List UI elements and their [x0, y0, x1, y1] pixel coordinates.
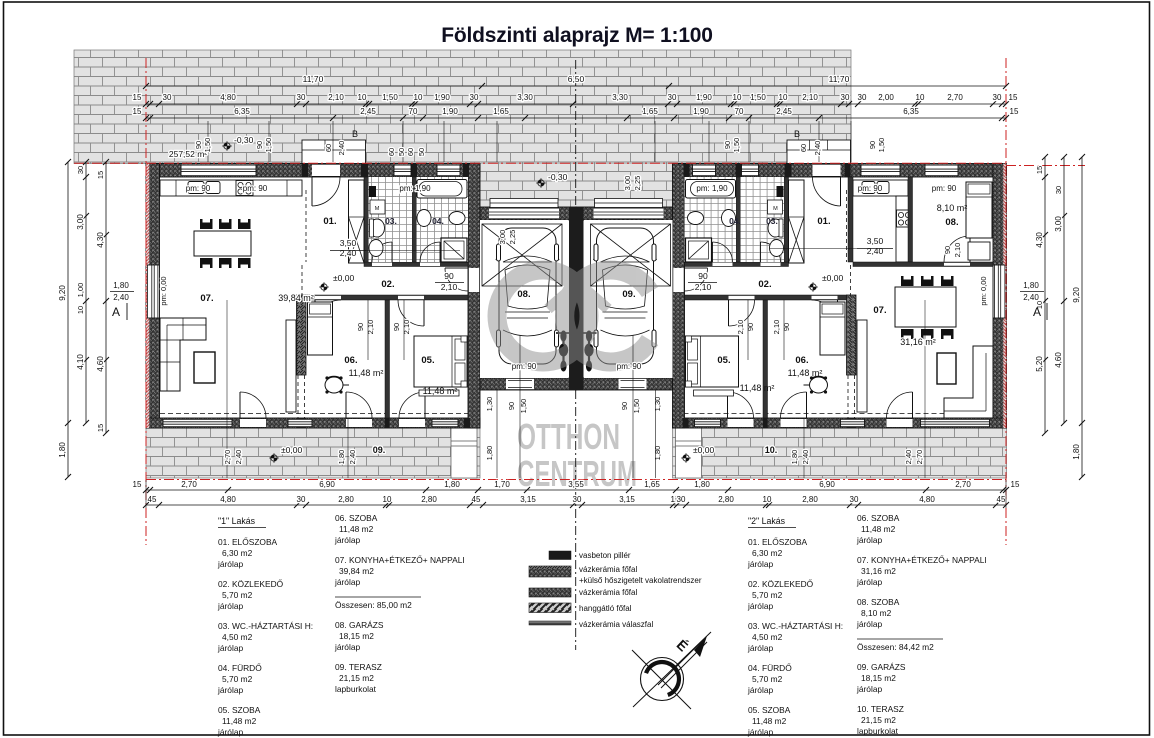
svg-text:járólap: járólap [747, 601, 773, 611]
svg-text:2,40: 2,40 [904, 450, 913, 465]
svg-text:járólap: járólap [217, 643, 243, 653]
svg-text:10: 10 [414, 93, 423, 102]
svg-text:6,50: 6,50 [568, 74, 585, 84]
svg-text:járólap: járólap [856, 684, 882, 694]
svg-text:15: 15 [96, 424, 105, 432]
svg-text:2,10: 2,10 [402, 320, 411, 335]
svg-text:hanggátló főfal: hanggátló főfal [579, 604, 632, 613]
svg-text:90: 90 [620, 402, 629, 410]
svg-text:3,15: 3,15 [619, 495, 635, 504]
svg-text:2,45: 2,45 [776, 107, 792, 116]
svg-text:39,84 m²: 39,84 m² [278, 293, 314, 303]
svg-text:járólap: járólap [217, 685, 243, 695]
svg-text:1,80: 1,80 [694, 480, 710, 489]
svg-text:pm: 0,00: pm: 0,00 [159, 276, 168, 305]
svg-text:15: 15 [1009, 93, 1018, 102]
svg-text:1,30: 1,30 [485, 397, 494, 412]
svg-text:járólap: járólap [747, 685, 773, 695]
svg-text:pm: 1,90: pm: 1,90 [399, 184, 431, 193]
svg-text:45: 45 [148, 495, 157, 504]
svg-text:11,48 m²: 11,48 m² [423, 386, 458, 396]
svg-text:2,80: 2,80 [718, 495, 734, 504]
svg-text:11,48 m²: 11,48 m² [788, 368, 823, 378]
svg-text:30: 30 [677, 495, 686, 504]
svg-text:M: M [375, 206, 380, 212]
svg-text:90: 90 [698, 271, 708, 281]
svg-text:pm: 1,90: pm: 1,90 [696, 184, 728, 193]
svg-text:2,70: 2,70 [915, 450, 924, 465]
svg-text:05.: 05. [717, 355, 730, 366]
svg-text:2,10: 2,10 [772, 320, 781, 335]
svg-text:09.: 09. [373, 445, 386, 455]
svg-text:30: 30 [850, 495, 859, 504]
svg-text:2,40: 2,40 [113, 293, 129, 302]
svg-text:4,80: 4,80 [220, 93, 236, 102]
svg-text:3,00: 3,00 [76, 214, 85, 230]
svg-text:2,40: 2,40 [867, 246, 884, 256]
svg-text:05. SZOBA: 05. SZOBA [748, 705, 791, 715]
svg-text:30: 30 [76, 166, 85, 174]
svg-text:2,10: 2,10 [695, 282, 712, 292]
svg-text:1,50: 1,50 [750, 93, 766, 102]
svg-text:06.: 06. [795, 355, 808, 366]
svg-text:6,30 m2: 6,30 m2 [752, 548, 783, 558]
svg-text:15: 15 [133, 93, 142, 102]
svg-text:50: 50 [397, 148, 406, 156]
svg-text:30: 30 [841, 93, 850, 102]
svg-text:90: 90 [507, 402, 516, 410]
svg-text:2,40: 2,40 [234, 450, 243, 465]
svg-text:1,90: 1,90 [434, 93, 450, 102]
svg-text:2,70: 2,70 [947, 93, 963, 102]
svg-text:2,40: 2,40 [340, 248, 357, 258]
svg-text:60: 60 [387, 148, 396, 156]
svg-text:A: A [1033, 305, 1041, 319]
svg-text:15: 15 [96, 171, 105, 179]
svg-text:39,84 m2: 39,84 m2 [339, 566, 374, 576]
svg-text:2,40: 2,40 [813, 141, 822, 156]
svg-text:3,30: 3,30 [517, 93, 533, 102]
svg-text:1,80: 1,80 [113, 281, 129, 290]
svg-text:6,90: 6,90 [319, 480, 335, 489]
svg-text:30: 30 [668, 93, 677, 102]
svg-text:4,30: 4,30 [1035, 232, 1044, 248]
svg-text:15: 15 [133, 480, 142, 489]
svg-text:4,80: 4,80 [919, 495, 935, 504]
svg-text:06. SZOBA: 06. SZOBA [335, 513, 378, 523]
svg-text:1,65: 1,65 [493, 107, 509, 116]
svg-text:08. GARÁZS: 08. GARÁZS [335, 620, 384, 630]
svg-text:2,10: 2,10 [366, 320, 375, 335]
svg-text:±0,00: ±0,00 [333, 273, 354, 283]
svg-text:3,30: 3,30 [612, 93, 628, 102]
svg-text:90: 90 [723, 141, 732, 149]
svg-text:02.: 02. [758, 279, 771, 290]
svg-text:"1" Lakás: "1" Lakás [218, 516, 256, 526]
svg-text:4,80: 4,80 [220, 495, 236, 504]
svg-text:5,70 m2: 5,70 m2 [752, 590, 783, 600]
svg-text:±0,00: ±0,00 [693, 445, 714, 455]
svg-text:2,40: 2,40 [337, 141, 346, 156]
svg-text:11,48 m2: 11,48 m2 [222, 716, 257, 726]
svg-text:18,15 m2: 18,15 m2 [339, 631, 374, 641]
svg-text:2,70: 2,70 [181, 480, 197, 489]
svg-text:2,40: 2,40 [348, 450, 357, 465]
svg-text:15: 15 [1035, 166, 1044, 174]
svg-text:1,80: 1,80 [1072, 444, 1081, 460]
svg-text:90: 90 [782, 323, 791, 331]
svg-text:1,80: 1,80 [485, 446, 494, 461]
svg-text:01. ELŐSZOBA: 01. ELŐSZOBA [218, 537, 278, 547]
svg-text:07. KONYHA+ÉTKEZŐ+ NAPPALI: 07. KONYHA+ÉTKEZŐ+ NAPPALI [857, 555, 987, 565]
svg-text:6,35: 6,35 [234, 107, 250, 116]
svg-text:11,48 m²: 11,48 m² [740, 383, 775, 393]
svg-text:90: 90 [255, 141, 264, 149]
svg-text:03.: 03. [385, 216, 397, 226]
svg-text:90: 90 [943, 246, 952, 254]
svg-text:2,25: 2,25 [508, 230, 517, 245]
svg-text:06.: 06. [344, 355, 357, 366]
svg-text:pm: 90: pm: 90 [186, 184, 211, 193]
svg-text:vázkerámia főfal: vázkerámia főfal [579, 588, 637, 597]
svg-text:10: 10 [763, 495, 772, 504]
svg-text:vázkerámia válaszfal: vázkerámia válaszfal [579, 620, 653, 629]
svg-text:járólap: járólap [747, 643, 773, 653]
svg-text:10: 10 [76, 306, 85, 314]
svg-text:2,45: 2,45 [360, 107, 376, 116]
svg-text:járólap: járólap [217, 559, 243, 569]
svg-text:04.: 04. [729, 216, 741, 226]
svg-text:1,50: 1,50 [382, 93, 398, 102]
svg-text:30: 30 [470, 93, 479, 102]
svg-text:30: 30 [573, 495, 582, 504]
svg-text:OTTHON: OTTHON [517, 416, 620, 457]
svg-text:8,10 m²: 8,10 m² [937, 203, 968, 213]
svg-text:járólap: járólap [334, 577, 360, 587]
svg-text:01.: 01. [323, 216, 336, 227]
svg-text:02.: 02. [381, 279, 394, 290]
svg-text:70: 70 [409, 107, 418, 116]
svg-text:1,90: 1,90 [442, 107, 458, 116]
svg-text:1,00: 1,00 [76, 283, 85, 298]
svg-text:járólap: járólap [747, 559, 773, 569]
svg-text:4,30: 4,30 [96, 232, 105, 248]
svg-text:6,90: 6,90 [819, 480, 835, 489]
svg-text:"2" Lakás: "2" Lakás [748, 516, 786, 526]
svg-text:09. TERASZ: 09. TERASZ [335, 662, 382, 672]
svg-text:04. FÜRDŐ: 04. FÜRDŐ [748, 663, 792, 673]
svg-text:02. KÖZLEKEDŐ: 02. KÖZLEKEDŐ [218, 579, 284, 589]
svg-text:30: 30 [297, 93, 306, 102]
svg-text:vázkerámia főfal: vázkerámia főfal [579, 565, 637, 574]
svg-text:15: 15 [133, 107, 142, 116]
svg-text:08.: 08. [517, 289, 530, 300]
svg-text:8,10 m2: 8,10 m2 [861, 608, 892, 618]
svg-text:60: 60 [799, 144, 808, 152]
svg-text:10: 10 [358, 93, 367, 102]
svg-text:Összesen: 84,42 m2: Összesen: 84,42 m2 [857, 642, 934, 652]
svg-text:4,60: 4,60 [1054, 352, 1063, 368]
svg-text:07.: 07. [200, 293, 213, 304]
svg-text:10.: 10. [765, 445, 778, 455]
svg-text:11,48 m2: 11,48 m2 [339, 524, 374, 534]
svg-text:+külső hőszigetelt vakolatrend: +külső hőszigetelt vakolatrendszer [579, 576, 702, 585]
svg-text:-0,30: -0,30 [548, 172, 568, 182]
svg-text:257,52 m²: 257,52 m² [169, 149, 207, 159]
svg-text:9,20: 9,20 [58, 285, 67, 301]
svg-text:pm: 90: pm: 90 [512, 362, 537, 371]
svg-text:18,15 m2: 18,15 m2 [861, 673, 896, 683]
svg-text:1,30: 1,30 [653, 397, 662, 412]
svg-text:5,70 m2: 5,70 m2 [222, 590, 253, 600]
svg-text:1,50: 1,50 [877, 138, 886, 153]
svg-text:1,50: 1,50 [732, 138, 741, 153]
svg-text:lapburkolat: lapburkolat [335, 684, 377, 694]
svg-text:5,70 m2: 5,70 m2 [222, 674, 253, 684]
svg-text:pm: 0,00: pm: 0,00 [979, 276, 988, 305]
svg-text:M: M [773, 206, 778, 212]
svg-text:4,60: 4,60 [96, 356, 105, 372]
svg-text:2,70: 2,70 [955, 480, 971, 489]
svg-text:10: 10 [916, 93, 925, 102]
svg-text:10. TERASZ: 10. TERASZ [857, 704, 904, 714]
svg-text:6,30 m2: 6,30 m2 [222, 548, 253, 558]
svg-text:1,50: 1,50 [519, 399, 528, 414]
svg-text:90: 90 [746, 323, 755, 331]
svg-text:járólap: járólap [217, 601, 243, 611]
svg-text:2,80: 2,80 [802, 495, 818, 504]
svg-text:1,80: 1,80 [58, 442, 67, 458]
svg-text:60: 60 [406, 148, 415, 156]
svg-text:50: 50 [417, 148, 426, 156]
svg-text:2,10: 2,10 [736, 320, 745, 335]
svg-text:1,80: 1,80 [653, 446, 662, 461]
svg-text:45: 45 [997, 495, 1006, 504]
svg-text:90: 90 [356, 323, 365, 331]
svg-text:02. KÖZLEKEDŐ: 02. KÖZLEKEDŐ [748, 579, 814, 589]
svg-text:3,15: 3,15 [520, 495, 536, 504]
svg-text:10: 10 [733, 93, 742, 102]
svg-text:Földszinti alaprajz M= 1:100: Földszinti alaprajz M= 1:100 [441, 24, 713, 47]
svg-text:90: 90 [392, 323, 401, 331]
svg-text:05.: 05. [421, 355, 434, 366]
svg-text:2,70: 2,70 [223, 450, 232, 465]
svg-text:-0,30: -0,30 [234, 135, 254, 145]
svg-text:90: 90 [194, 141, 203, 149]
svg-text:09. GARÁZS: 09. GARÁZS [857, 662, 906, 672]
svg-text:05. SZOBA: 05. SZOBA [218, 705, 261, 715]
svg-text:4,10: 4,10 [76, 354, 85, 370]
svg-text:04.: 04. [432, 216, 444, 226]
svg-text:08. SZOBA: 08. SZOBA [857, 597, 900, 607]
svg-text:járólap: járólap [856, 619, 882, 629]
svg-text:15: 15 [1010, 107, 1019, 116]
svg-text:A: A [112, 305, 120, 319]
svg-text:30: 30 [163, 93, 172, 102]
svg-text:30: 30 [993, 93, 1002, 102]
svg-text:5,70 m2: 5,70 m2 [752, 674, 783, 684]
svg-text:09.: 09. [622, 289, 635, 300]
svg-text:3,00: 3,00 [498, 230, 507, 245]
svg-text:1,80: 1,80 [444, 480, 460, 489]
svg-text:45: 45 [472, 495, 481, 504]
svg-text:pm: 90: pm: 90 [617, 362, 642, 371]
svg-text:21,15 m2: 21,15 m2 [861, 715, 896, 725]
svg-text:07.: 07. [873, 305, 886, 316]
svg-text:3,50: 3,50 [867, 236, 884, 246]
svg-text:30: 30 [1054, 186, 1063, 194]
svg-text:04. FÜRDŐ: 04. FÜRDŐ [218, 663, 262, 673]
svg-text:2,10: 2,10 [441, 282, 458, 292]
svg-text:07. KONYHA+ÉTKEZŐ+ NAPPALI: 07. KONYHA+ÉTKEZŐ+ NAPPALI [335, 555, 465, 565]
svg-text:30: 30 [858, 93, 867, 102]
svg-text:08.: 08. [945, 217, 958, 228]
svg-text:9,20: 9,20 [1072, 287, 1081, 303]
svg-text:11,48 m2: 11,48 m2 [861, 524, 896, 534]
svg-text:±0,00: ±0,00 [281, 445, 302, 455]
svg-text:2,40: 2,40 [801, 450, 810, 465]
svg-text:pm: 90: pm: 90 [243, 184, 268, 193]
svg-text:járólap: járólap [334, 642, 360, 652]
svg-text:Összesen: 85,00 m2: Összesen: 85,00 m2 [335, 600, 412, 610]
svg-text:3,00: 3,00 [1054, 216, 1063, 232]
svg-text:1,80: 1,80 [790, 450, 799, 465]
svg-text:járólap: járólap [856, 577, 882, 587]
svg-text:B: B [352, 129, 358, 139]
svg-text:10: 10 [383, 495, 392, 504]
svg-text:2,80: 2,80 [338, 495, 354, 504]
svg-text:2,10: 2,10 [328, 93, 344, 102]
svg-text:vasbeton pillér: vasbeton pillér [579, 551, 631, 560]
svg-text:pm: 90: pm: 90 [858, 184, 883, 193]
svg-text:±0,00: ±0,00 [822, 273, 843, 283]
svg-text:2,10: 2,10 [802, 93, 818, 102]
svg-text:90: 90 [444, 271, 454, 281]
svg-text:1,70: 1,70 [494, 480, 510, 489]
svg-text:1,80: 1,80 [337, 450, 346, 465]
svg-text:11,48 m²: 11,48 m² [349, 368, 384, 378]
svg-text:2,40: 2,40 [1023, 293, 1039, 302]
svg-text:3,00: 3,00 [623, 176, 632, 191]
svg-text:70: 70 [735, 107, 744, 116]
svg-text:1,90: 1,90 [696, 93, 712, 102]
svg-text:90: 90 [868, 141, 877, 149]
svg-text:3,50: 3,50 [340, 238, 357, 248]
svg-text:1,90: 1,90 [693, 107, 709, 116]
svg-text:6,35: 6,35 [903, 107, 919, 116]
svg-text:2,10: 2,10 [953, 243, 962, 258]
svg-text:2,00: 2,00 [878, 93, 894, 102]
svg-text:11,70: 11,70 [303, 74, 324, 84]
svg-text:01.: 01. [817, 216, 830, 227]
svg-text:15: 15 [1011, 480, 1020, 489]
svg-text:4,50 m2: 4,50 m2 [752, 632, 783, 642]
svg-text:2,25: 2,25 [633, 176, 642, 191]
svg-text:1,50: 1,50 [632, 399, 641, 414]
svg-text:03. WC.-HÁZTARTÁSI H:: 03. WC.-HÁZTARTÁSI H: [748, 621, 843, 631]
svg-text:1,65: 1,65 [642, 107, 658, 116]
svg-text:21,15 m2: 21,15 m2 [339, 673, 374, 683]
svg-text:1,50: 1,50 [264, 138, 273, 153]
svg-text:60: 60 [324, 144, 333, 152]
svg-text:4,50 m2: 4,50 m2 [222, 632, 253, 642]
svg-text:járólap: járólap [334, 535, 360, 545]
svg-text:03. WC.-HÁZTARTÁSI H:: 03. WC.-HÁZTARTÁSI H: [218, 621, 313, 631]
svg-text:pm: 90: pm: 90 [932, 184, 957, 193]
svg-text:2,80: 2,80 [421, 495, 437, 504]
svg-text:1,65: 1,65 [644, 480, 660, 489]
svg-text:01. ELŐSZOBA: 01. ELŐSZOBA [748, 537, 808, 547]
svg-text:03.: 03. [766, 216, 778, 226]
svg-text:10: 10 [779, 93, 788, 102]
svg-text:5,20: 5,20 [1035, 356, 1044, 372]
svg-text:31,16 m²: 31,16 m² [900, 337, 936, 347]
svg-text:30: 30 [297, 495, 306, 504]
svg-text:31,16 m2: 31,16 m2 [861, 566, 896, 576]
svg-text:1,50: 1,50 [203, 138, 212, 153]
svg-text:B: B [794, 129, 800, 139]
svg-text:11,48 m2: 11,48 m2 [752, 716, 787, 726]
svg-text:3,55: 3,55 [568, 480, 584, 489]
svg-text:11,70: 11,70 [829, 74, 850, 84]
svg-text:1,80: 1,80 [1023, 281, 1039, 290]
svg-text:járólap: járólap [856, 535, 882, 545]
svg-text:06. SZOBA: 06. SZOBA [857, 513, 900, 523]
